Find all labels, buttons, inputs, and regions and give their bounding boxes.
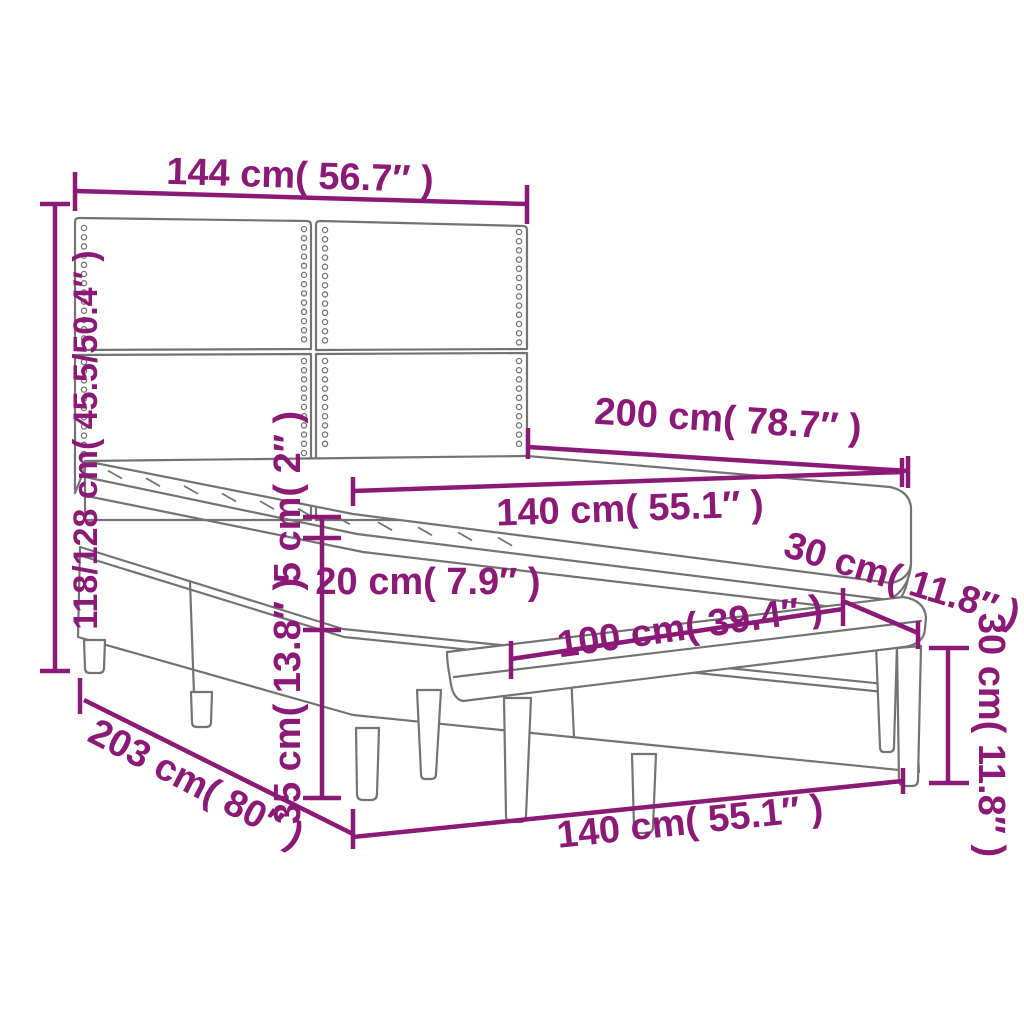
bed-length-label: 200 cm( 78.7″ ) — [593, 391, 863, 450]
diagram-canvas: 144 cm( 56.7″ ) 118/128 cm( 45.5/50.4″ )… — [0, 0, 1024, 1024]
bed-leg — [191, 692, 212, 727]
dim-bench-height: 30 cm( 11.8″ ) — [929, 613, 1012, 857]
bed-leg — [356, 728, 379, 800]
bed-width-front-label: 140 cm( 55.1″ ) — [555, 787, 825, 857]
headboard-panel-top-right — [316, 221, 527, 350]
dim-bed-width-front: 140 cm( 55.1″ ) — [353, 768, 903, 857]
mattress-height-label: 20 cm( 7.9″ ) — [315, 561, 540, 603]
overall-height-label: 118/128 cm( 45.5/50.4″ ) — [67, 250, 105, 629]
dim-headboard-width: 144 cm( 56.7″ ) — [75, 151, 527, 224]
bench-leg-back-right — [876, 644, 897, 752]
bench-leg-back-left — [417, 690, 441, 779]
bench-height-label: 30 cm( 11.8″ ) — [970, 613, 1012, 857]
bench-leg-front-left — [504, 698, 531, 822]
headboard-width-label: 144 cm( 56.7″ ) — [166, 151, 435, 201]
bed-leg — [84, 640, 105, 673]
bench-leg-front-right — [897, 646, 921, 786]
topper-height-label: 5 cm( 2″ ) — [267, 411, 309, 583]
dim-overall-length: 203 cm( 80″ ) — [80, 678, 353, 857]
headboard-panel-top-left — [75, 218, 311, 350]
base-height-label: 35 cm( 13.8″ ) — [267, 578, 309, 824]
dim-overall-height: 118/128 cm( 45.5/50.4″ ) — [40, 204, 105, 671]
bed-dimension-diagram: 144 cm( 56.7″ ) 118/128 cm( 45.5/50.4″ )… — [0, 0, 1024, 1024]
